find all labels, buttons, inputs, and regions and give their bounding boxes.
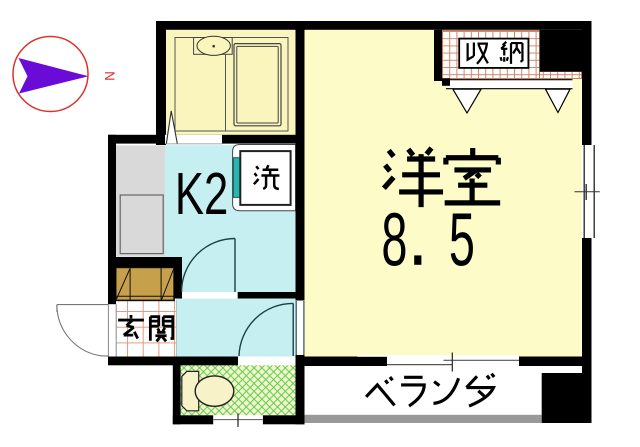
svg-text:5: 5 xyxy=(449,198,475,282)
svg-text:8: 8 xyxy=(381,198,407,282)
svg-text:N: N xyxy=(102,71,117,81)
svg-text:K2: K2 xyxy=(175,161,228,227)
